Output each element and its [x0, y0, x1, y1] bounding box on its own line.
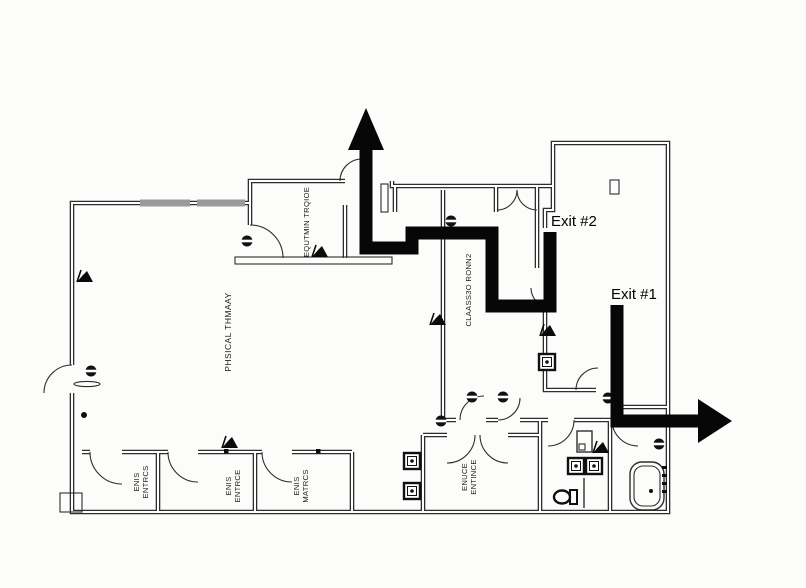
wall-dot [81, 412, 87, 418]
exit1-label: Exit #1 [611, 286, 657, 303]
exit-route-1 [617, 305, 732, 443]
room-label-office2: ENIS ENTRCE [224, 469, 242, 502]
outlet-box-icon [404, 453, 420, 469]
exit-route-2 [348, 108, 550, 306]
door-hardware-icon [498, 392, 509, 403]
exit2-label: Exit #2 [551, 213, 597, 230]
door-stop [316, 449, 321, 454]
room-label-equipment: EQUTMIN TRQIOE [302, 187, 311, 257]
svg-text:ENTRCE: ENTRCE [233, 469, 242, 502]
svg-text:ENIS: ENIS [292, 477, 301, 496]
door-stop [224, 449, 229, 454]
equipment-shelf [235, 257, 392, 264]
svg-text:ENUCE: ENUCE [460, 463, 469, 491]
svg-text:MATRCS: MATRCS [301, 469, 310, 502]
floor-plan: Exit #2 Exit #1 PHSICAL THMAAY EQUTMIN T… [0, 0, 806, 588]
door-marker-icon [593, 441, 609, 453]
door-marker-icon [540, 324, 556, 336]
window-marker [140, 200, 190, 207]
sink-icon [568, 458, 584, 474]
room-label-classroom2: CLAASS3O RONN2 [464, 254, 473, 327]
floor-plan-svg: Exit #2 Exit #1 PHSICAL THMAAY EQUTMIN T… [0, 0, 806, 588]
door-hardware-icon [242, 236, 253, 247]
door-hardware-icon [436, 416, 447, 427]
door-hardware-icon [654, 439, 665, 450]
sink-icon [586, 458, 602, 474]
door-marker-icon [222, 436, 238, 448]
sink-cabinet-icon [577, 431, 592, 452]
door-marker-icon [312, 245, 328, 257]
toilet-icon [554, 490, 577, 504]
outlet-box-icon [404, 483, 420, 499]
door-hardware-icon [446, 216, 457, 227]
door-marker-icon [77, 270, 93, 282]
up-arrow-icon [348, 108, 384, 150]
svg-text:ENTRCS: ENTRCS [141, 465, 150, 498]
window-marker [197, 200, 245, 207]
outlet-box-icon [539, 354, 555, 370]
room-label-office1: ENIS ENTRCS [132, 465, 150, 498]
door-hardware-icon [467, 392, 478, 403]
right-arrow-icon [698, 399, 732, 443]
restroom-fixtures [554, 431, 806, 510]
door-shelf [74, 381, 100, 386]
room-label-physical-therapy: PHSICAL THMAAY [223, 292, 233, 371]
wall-fixture [610, 180, 619, 194]
svg-text:ENTINCE: ENTINCE [469, 459, 478, 494]
svg-text:ENIS: ENIS [224, 477, 233, 496]
room-label-office3: ENIS MATRCS [292, 469, 310, 502]
room-label-entry: ENUCE ENTINCE [460, 459, 478, 494]
bathtub-icon [630, 462, 664, 510]
door-hardware-icon [86, 366, 97, 377]
outlet-boxes [404, 354, 555, 499]
door-leaf [381, 184, 388, 212]
svg-text:ENIS: ENIS [132, 473, 141, 492]
